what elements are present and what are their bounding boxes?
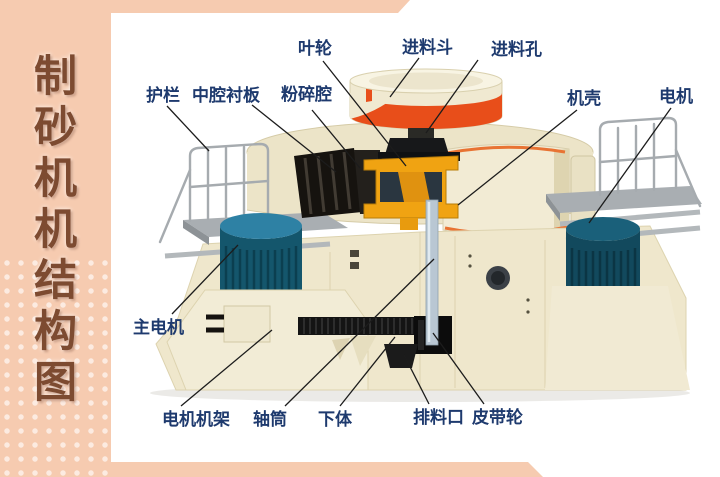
page: 制砂机机结构图 <box>0 0 720 477</box>
left-motor <box>220 213 302 300</box>
label-impeller: 叶轮 <box>298 39 332 58</box>
label-shaft-tube: 轴筒 <box>253 410 287 429</box>
label-motor: 电机 <box>659 87 693 106</box>
label-main-motor: 主电机 <box>133 318 184 337</box>
label-motor-frame: 电机机架 <box>162 410 230 429</box>
machine-illustration <box>0 0 720 477</box>
diagram-area: 叶轮 进料斗 进料孔 护栏 中腔衬板 粉碎腔 机壳 电机 主电机 电机机架 轴筒… <box>111 13 720 462</box>
label-guardrail: 护栏 <box>146 86 180 105</box>
label-feed-hole: 进料孔 <box>491 40 542 59</box>
leader-guardrail <box>167 106 209 151</box>
feed-hopper-shape <box>350 69 502 129</box>
label-feed-hopper: 进料斗 <box>402 38 453 57</box>
main-shaft <box>426 200 438 345</box>
label-lower-body: 下体 <box>318 410 352 429</box>
label-crushing-chamber: 粉碎腔 <box>281 85 332 104</box>
label-belt-pulley: 皮带轮 <box>472 408 523 427</box>
right-motor <box>545 217 690 390</box>
drive-belt <box>298 317 418 335</box>
label-casing: 机壳 <box>567 89 601 108</box>
label-discharge-port: 排料口 <box>413 408 464 427</box>
label-cavity-liner: 中腔衬板 <box>192 86 260 105</box>
